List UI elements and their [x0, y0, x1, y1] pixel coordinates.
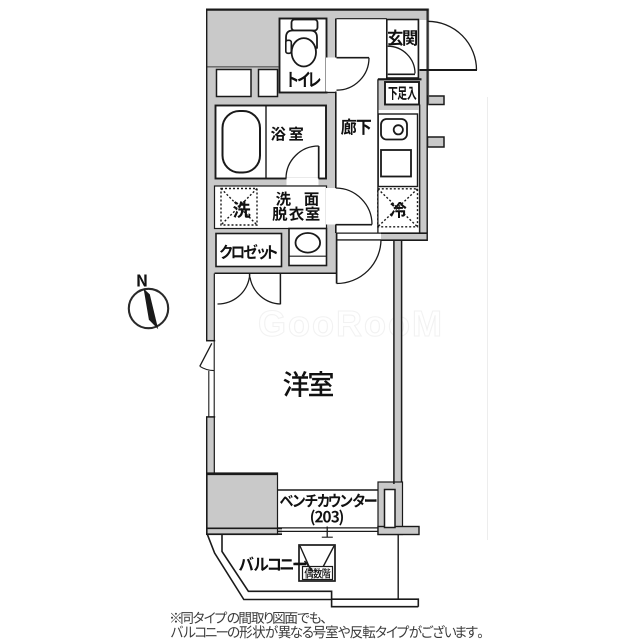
svg-text:GooRooM: GooRooM — [258, 303, 444, 344]
